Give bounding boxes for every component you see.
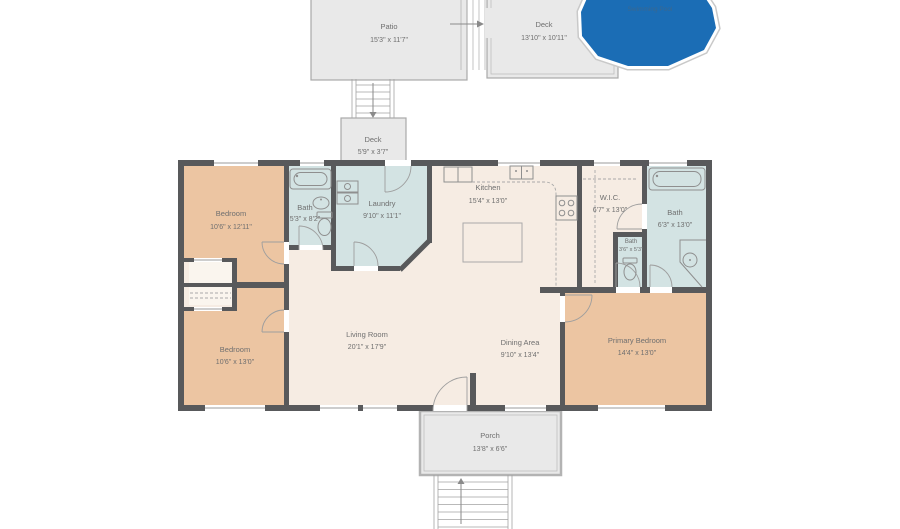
stairs-bottom-icon	[434, 475, 512, 529]
window	[363, 405, 397, 411]
svg-text:5'9" x 3'7": 5'9" x 3'7"	[358, 149, 389, 156]
svg-text:20'1" x 17'9": 20'1" x 17'9"	[348, 344, 387, 351]
svg-text:Deck: Deck	[364, 135, 381, 144]
svg-text:15'3" x 11'7": 15'3" x 11'7"	[370, 37, 408, 44]
svg-text:Bath: Bath	[667, 208, 682, 217]
svg-text:14'4" x 13'0": 14'4" x 13'0"	[618, 350, 657, 357]
stairs-top-icon	[352, 79, 394, 119]
svg-text:Deck: Deck	[535, 20, 552, 29]
label-swimming-pool: Swimming Pool	[628, 6, 673, 13]
window	[598, 405, 665, 411]
window	[498, 160, 540, 166]
svg-text:Living Room: Living Room	[346, 330, 388, 339]
closet-bottom	[189, 287, 232, 305]
direction-arrow-icon	[370, 83, 377, 118]
svg-text:Laundry: Laundry	[368, 199, 395, 208]
svg-text:13'8" x 6'6": 13'8" x 6'6"	[473, 446, 508, 453]
window	[505, 405, 546, 411]
floor-plan-canvas: Patio 15'3" x 11'7" Deck 13'10" x 10'11"…	[0, 0, 900, 529]
window	[300, 160, 324, 166]
svg-text:9'10" x 11'1": 9'10" x 11'1"	[363, 213, 401, 220]
svg-text:Bath: Bath	[297, 203, 312, 212]
svg-text:Primary Bedroom: Primary Bedroom	[608, 336, 666, 345]
svg-text:15'4" x 13'0": 15'4" x 13'0"	[469, 198, 508, 205]
svg-text:Patio: Patio	[380, 22, 397, 31]
window	[214, 160, 258, 166]
svg-text:Porch: Porch	[480, 431, 500, 440]
svg-text:3'6" x 5'3": 3'6" x 5'3"	[619, 247, 643, 253]
svg-text:Bedroom: Bedroom	[220, 345, 250, 354]
room-primary-bedroom	[565, 293, 706, 405]
svg-text:5'3" x 8'2": 5'3" x 8'2"	[290, 216, 321, 223]
porch	[420, 411, 561, 475]
svg-text:W.I.C.: W.I.C.	[600, 193, 620, 202]
svg-text:Kitchen: Kitchen	[475, 183, 500, 192]
svg-text:13'10" x 10'11": 13'10" x 10'11"	[521, 35, 567, 42]
svg-text:Dining Area: Dining Area	[501, 338, 541, 347]
window	[649, 160, 687, 166]
svg-text:9'10" x 13'4": 9'10" x 13'4"	[501, 352, 540, 359]
closet-top	[189, 262, 232, 283]
window	[320, 405, 358, 411]
svg-text:10'6" x 12'11": 10'6" x 12'11"	[210, 224, 252, 231]
svg-text:Bedroom: Bedroom	[216, 209, 246, 218]
window	[594, 160, 620, 166]
window	[205, 405, 265, 411]
svg-text:Swimming Pool: Swimming Pool	[628, 6, 673, 13]
closet-bifold-door	[194, 307, 222, 311]
svg-text:6'7" x 13'0": 6'7" x 13'0"	[593, 207, 628, 214]
svg-text:10'6" x 13'0": 10'6" x 13'0"	[216, 359, 255, 366]
svg-text:Bath: Bath	[625, 239, 637, 245]
direction-arrow-icon	[458, 478, 465, 524]
closet-bifold-door	[194, 258, 222, 262]
svg-text:6'3" x 13'0": 6'3" x 13'0"	[658, 222, 693, 229]
